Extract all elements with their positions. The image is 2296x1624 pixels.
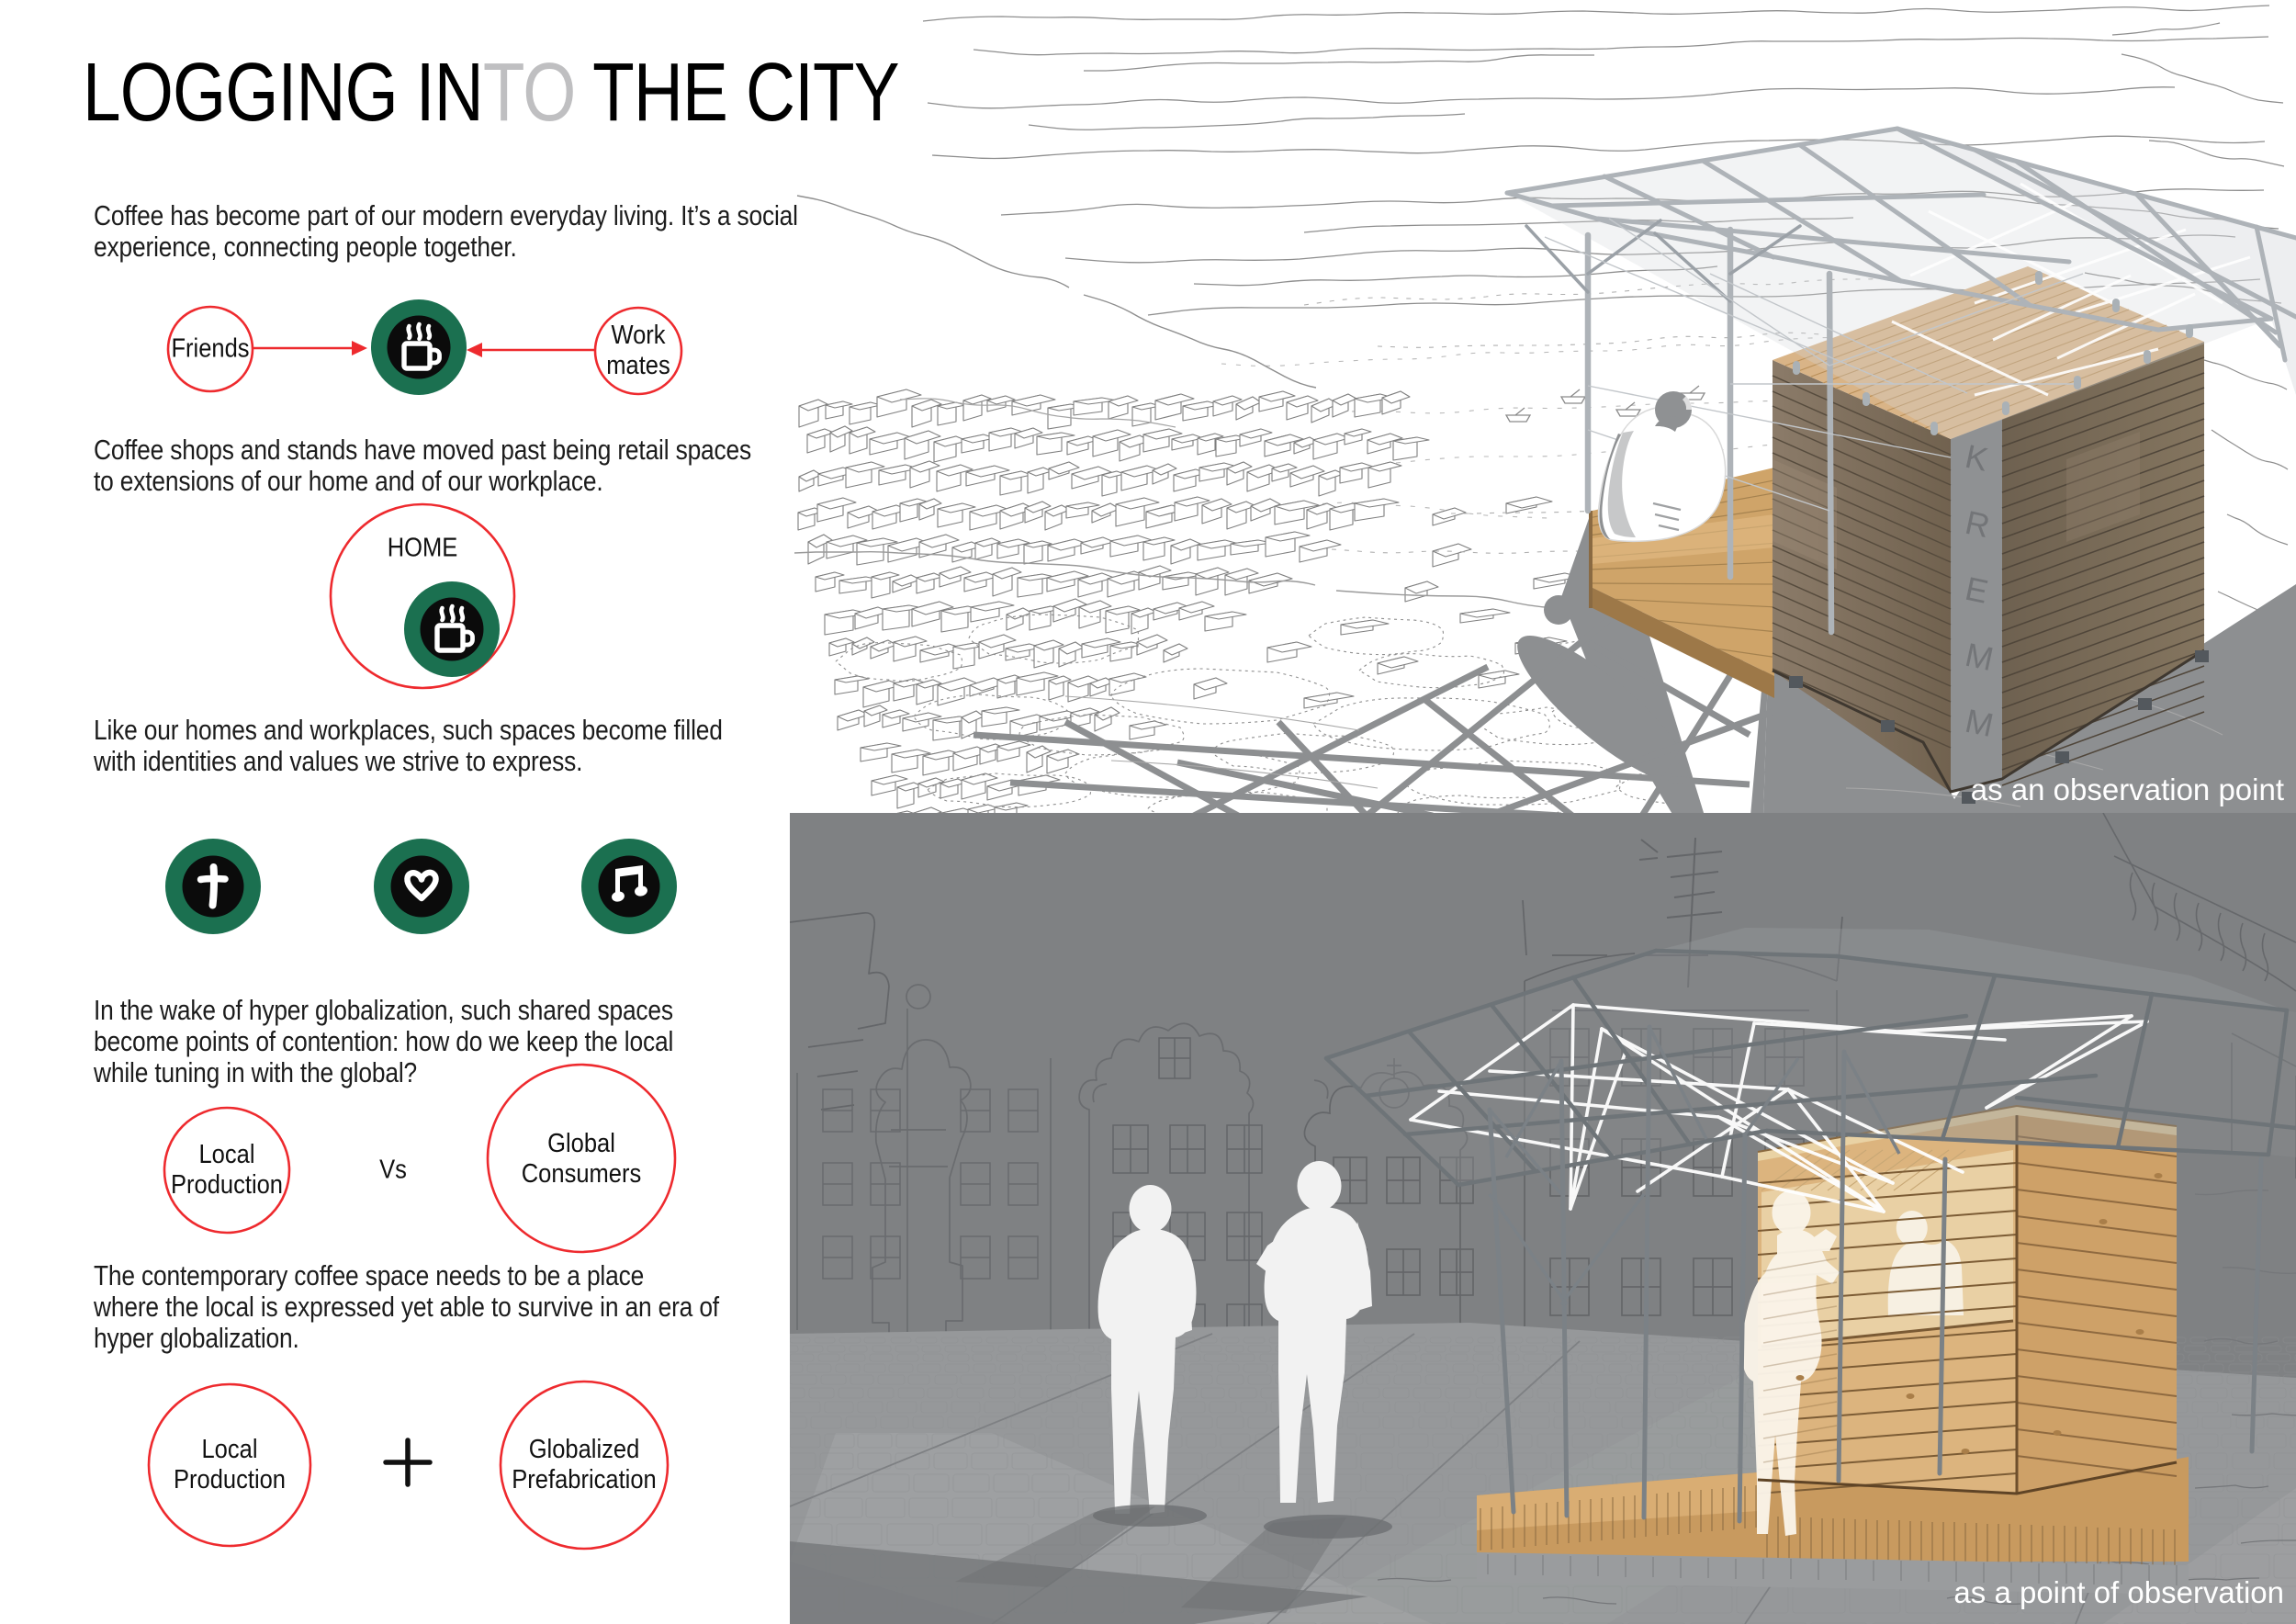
svg-text:as a point of observation: as a point of observation: [1953, 1575, 2284, 1609]
svg-text:as an observation point: as an observation point: [1971, 773, 2284, 806]
